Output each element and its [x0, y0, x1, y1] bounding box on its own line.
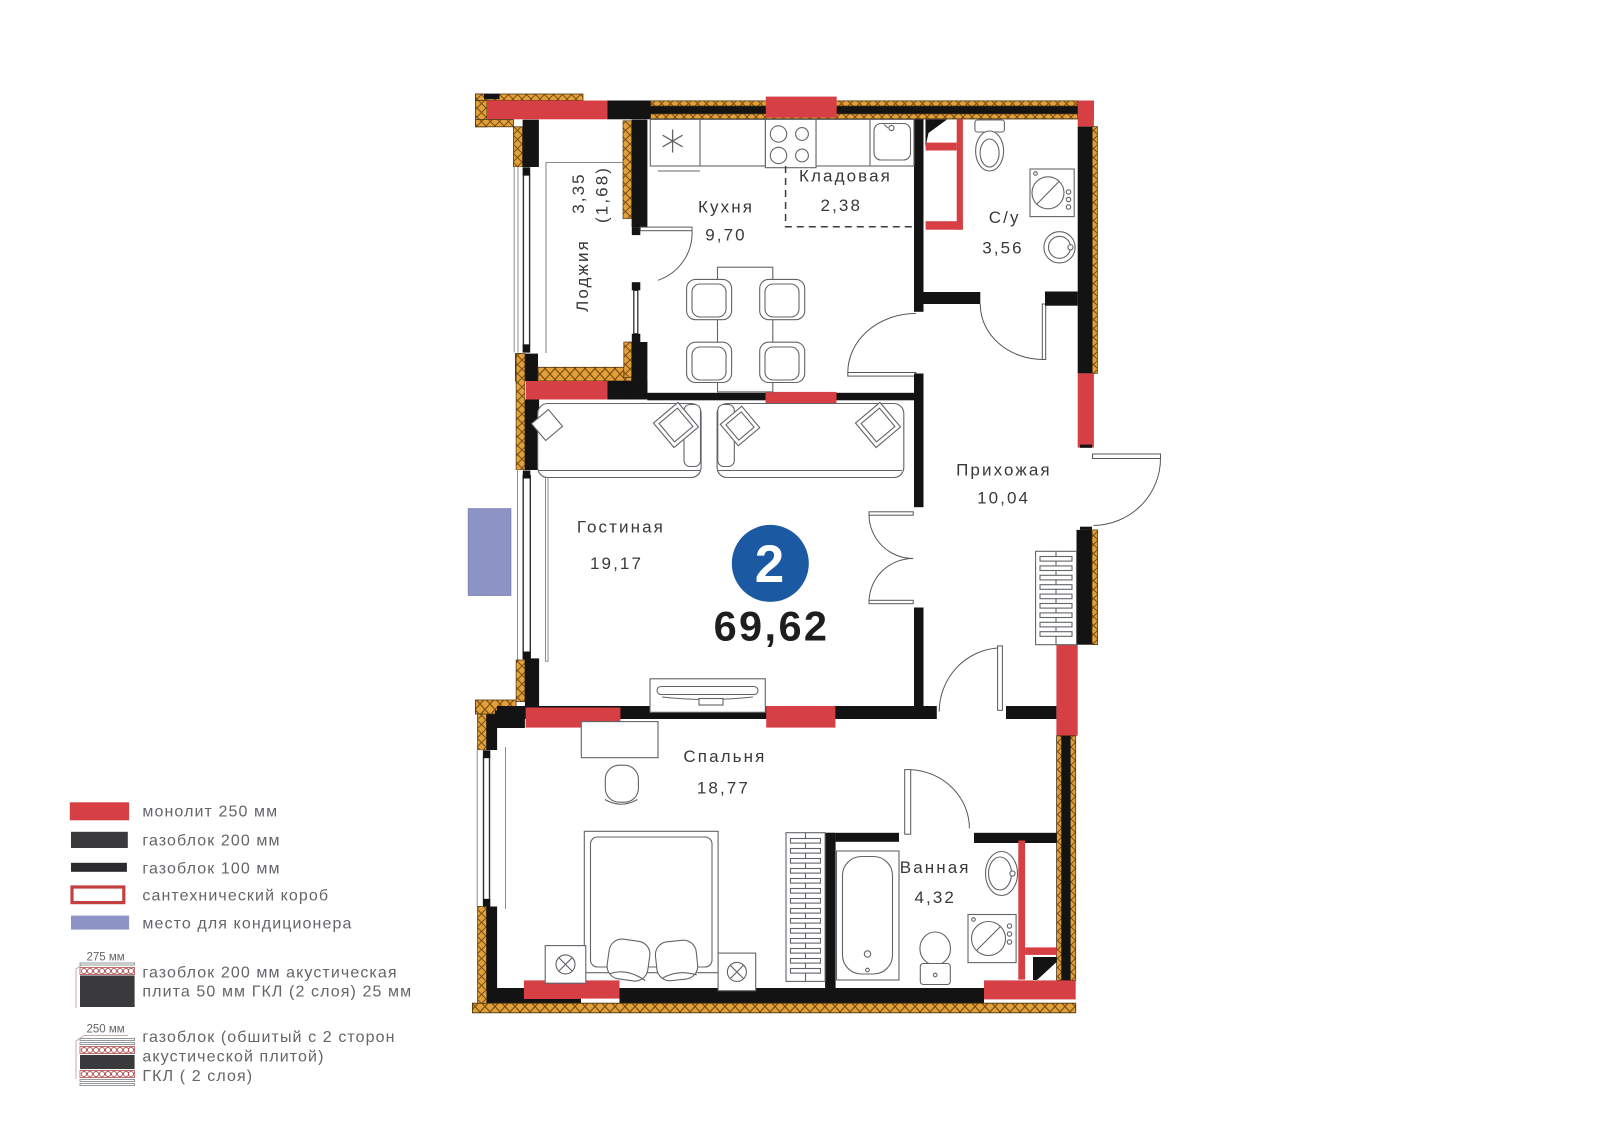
svg-text:место для кондиционера: место для кондиционера — [142, 916, 352, 933]
svg-text:Кладовая: Кладовая — [799, 167, 892, 186]
svg-text:газоблок 100 мм: газоблок 100 мм — [142, 860, 280, 877]
svg-text:акустической плитой): акустической плитой) — [142, 1048, 324, 1065]
svg-text:газоблок 200 мм акустическая: газоблок 200 мм акустическая — [142, 965, 397, 982]
svg-text:(1,68): (1,68) — [593, 166, 612, 223]
svg-text:С/у: С/у — [989, 208, 1021, 227]
svg-text:Лоджия: Лоджия — [573, 239, 592, 312]
svg-text:9,70: 9,70 — [705, 226, 747, 245]
svg-text:ГКЛ ( 2 слоя): ГКЛ ( 2 слоя) — [142, 1068, 253, 1085]
svg-text:250 мм: 250 мм — [87, 1024, 125, 1036]
svg-text:сантехнический короб: сантехнический короб — [142, 888, 329, 905]
svg-text:Кухня: Кухня — [698, 198, 754, 217]
svg-text:3,35: 3,35 — [569, 172, 588, 214]
svg-text:Гостиная: Гостиная — [577, 517, 665, 536]
svg-text:2,38: 2,38 — [821, 196, 863, 215]
svg-text:монолит 250 мм: монолит 250 мм — [142, 804, 278, 821]
svg-text:10,04: 10,04 — [977, 488, 1030, 507]
svg-text:4,32: 4,32 — [914, 888, 956, 907]
svg-text:19,17: 19,17 — [590, 554, 643, 573]
svg-text:2: 2 — [755, 535, 784, 594]
svg-text:газоблок 200 мм: газоблок 200 мм — [142, 833, 280, 850]
svg-text:газоблок (обшитый с 2 сторон: газоблок (обшитый с 2 сторон — [142, 1029, 395, 1046]
svg-text:18,77: 18,77 — [697, 779, 750, 798]
svg-text:275 мм: 275 мм — [87, 952, 125, 964]
svg-text:69,62: 69,62 — [714, 603, 830, 650]
svg-text:Прихожая: Прихожая — [956, 460, 1052, 479]
svg-text:3,56: 3,56 — [982, 239, 1024, 258]
svg-text:Спальня: Спальня — [683, 747, 766, 766]
svg-text:Ванная: Ванная — [900, 858, 971, 877]
svg-text:плита 50 мм ГКЛ (2 слоя) 25 мм: плита 50 мм ГКЛ (2 слоя) 25 мм — [142, 983, 412, 1000]
